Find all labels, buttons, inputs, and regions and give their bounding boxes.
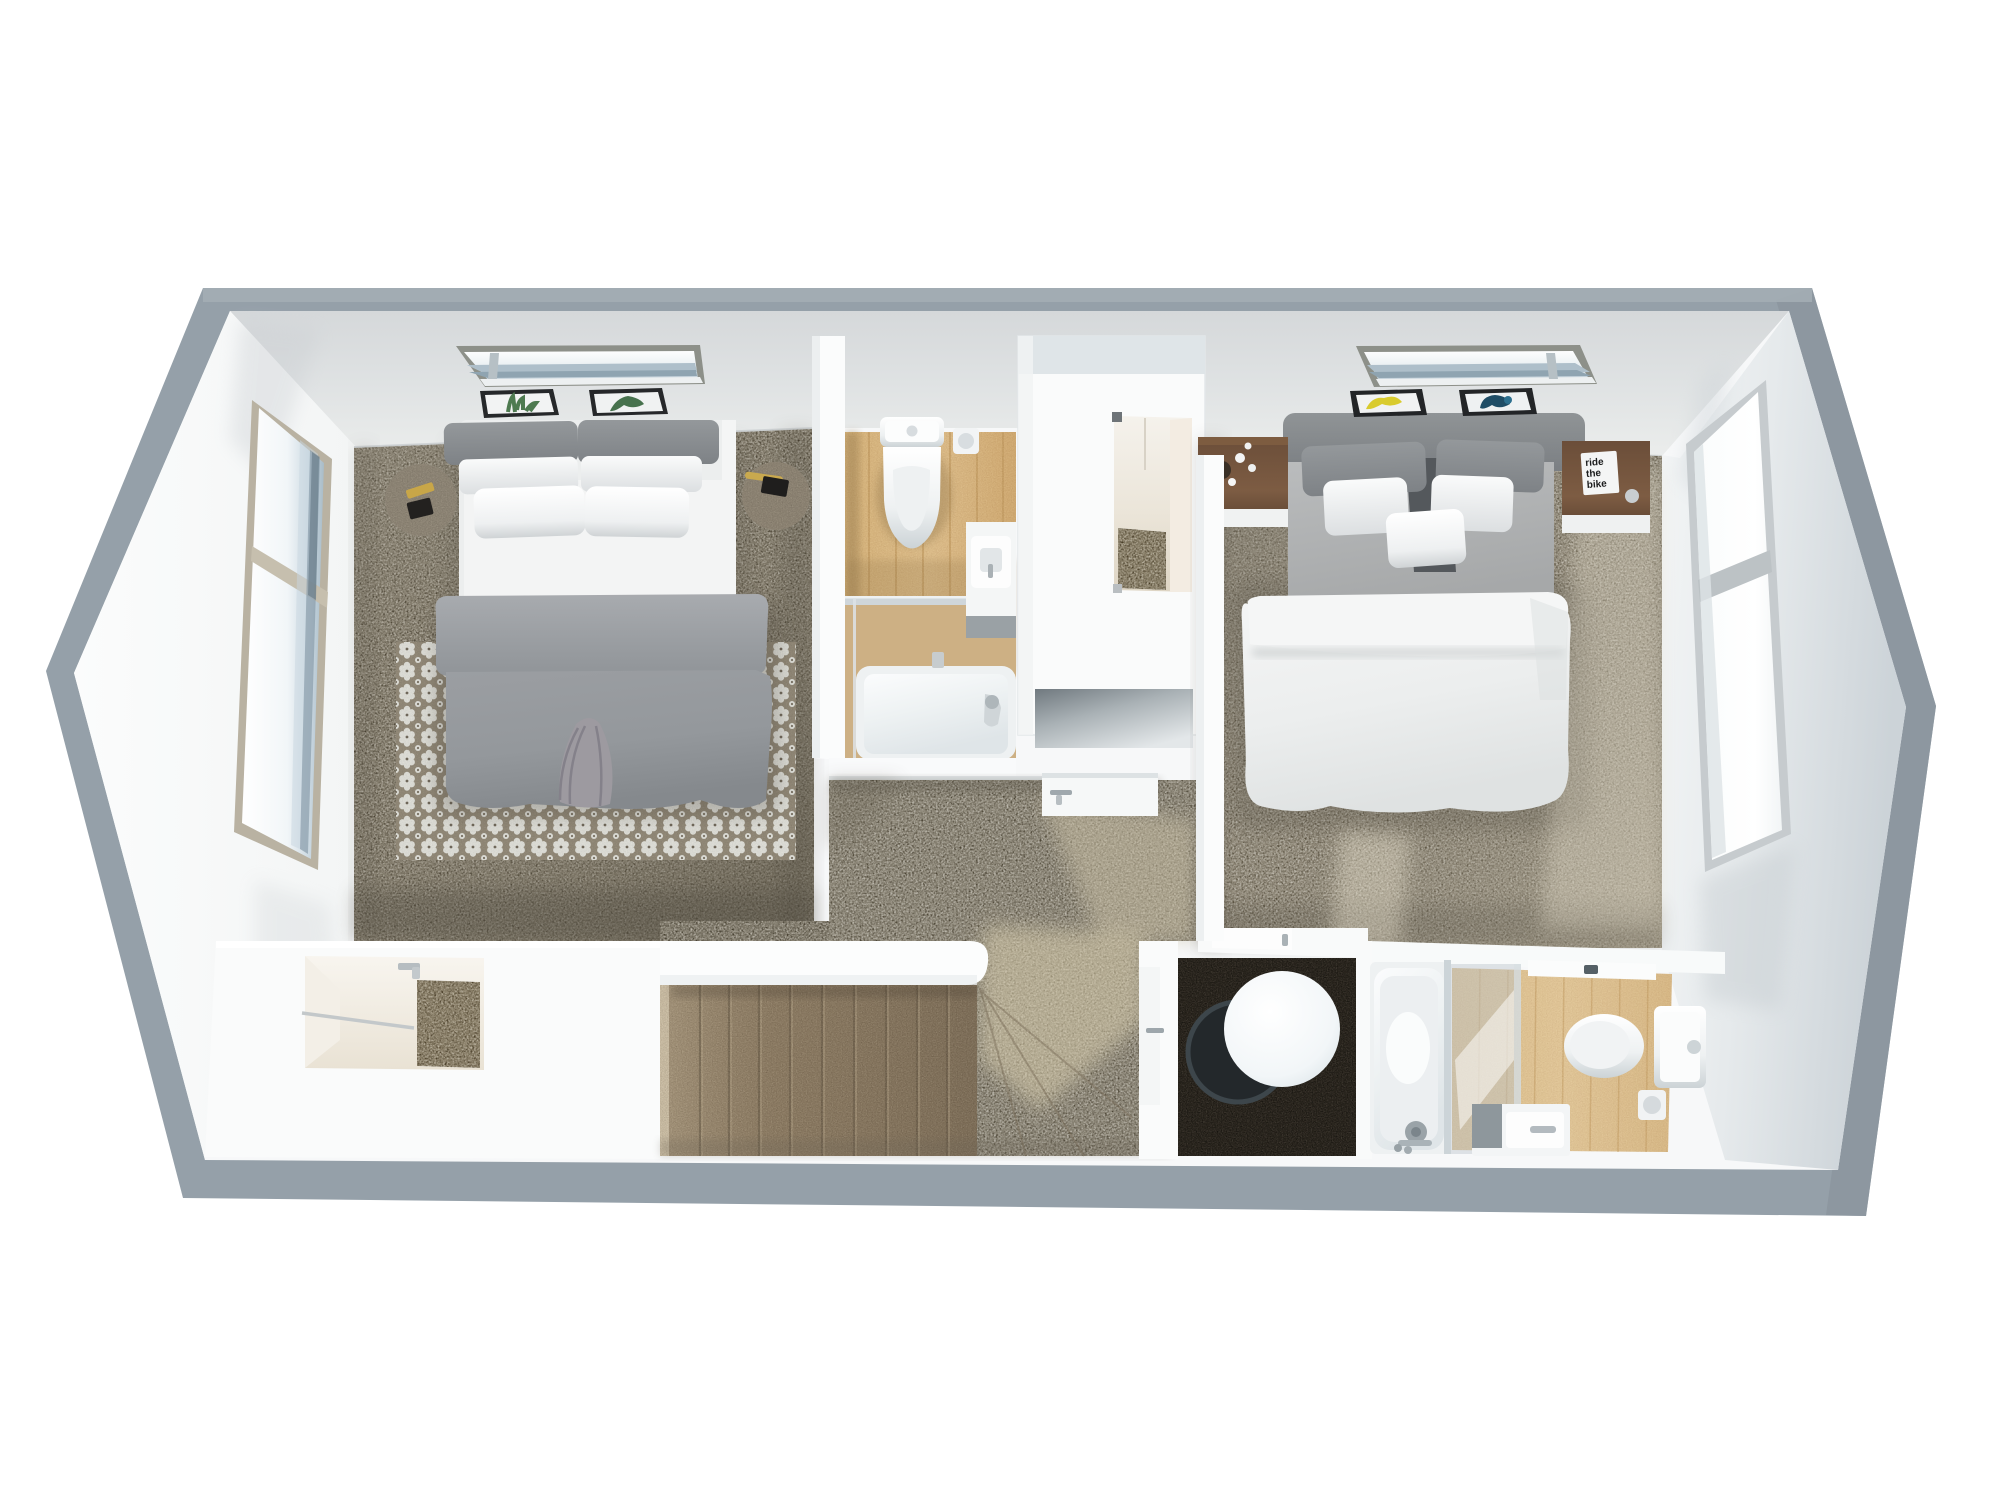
svg-text:bike: bike: [1586, 479, 1607, 491]
svg-text:ride: ride: [1585, 457, 1604, 469]
